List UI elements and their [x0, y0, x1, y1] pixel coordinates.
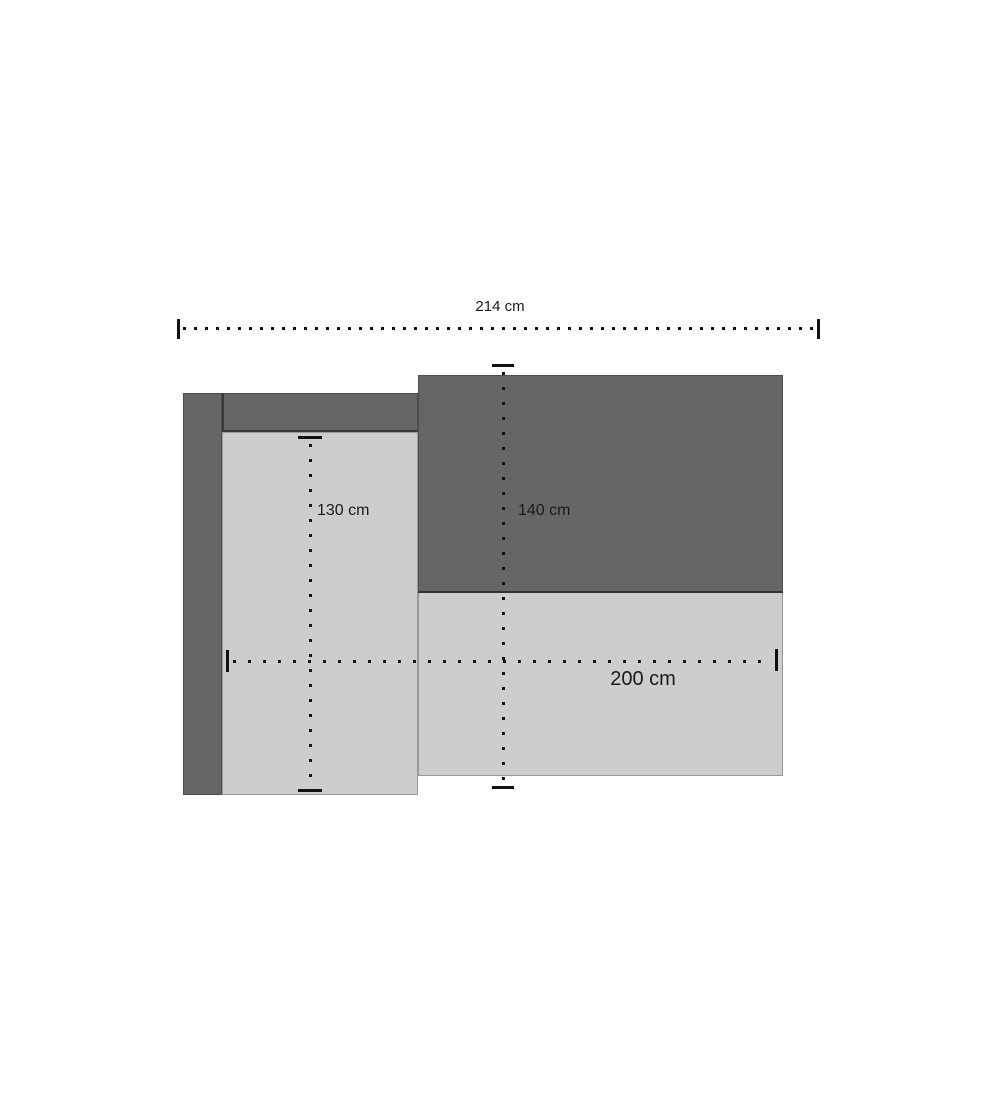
dimension-line-total-depth: [502, 372, 505, 780]
dimension-cap-depth-bottom: [492, 786, 514, 789]
dimension-line-seat-width: [233, 660, 773, 663]
dimension-cap-chaise-top: [298, 436, 322, 439]
dimension-cap-total-width-left: [177, 319, 180, 339]
dimension-line-chaise-length: [309, 444, 312, 786]
dimension-label-total-depth: 140 cm: [518, 502, 570, 520]
sofa-right-backrest: [418, 375, 783, 593]
dimension-cap-chaise-bottom: [298, 789, 322, 792]
sofa-left-armrest: [183, 393, 222, 795]
dimension-line-total-width: [183, 327, 815, 330]
dimension-cap-depth-top: [492, 364, 514, 367]
dimension-label-chaise-length: 130 cm: [317, 502, 369, 520]
dimension-label-total-width: 214 cm: [420, 298, 580, 315]
diagram-canvas: 214 cm 130 cm 140 cm 200 cm: [0, 0, 1000, 1100]
dimension-cap-seat-right: [775, 649, 778, 671]
sofa-chaise-seat: [222, 432, 418, 795]
dimension-cap-total-width-right: [817, 319, 820, 339]
sofa-left-backrest: [222, 393, 418, 432]
dimension-cap-seat-left: [226, 650, 229, 672]
dimension-label-seat-width: 200 cm: [563, 668, 723, 691]
